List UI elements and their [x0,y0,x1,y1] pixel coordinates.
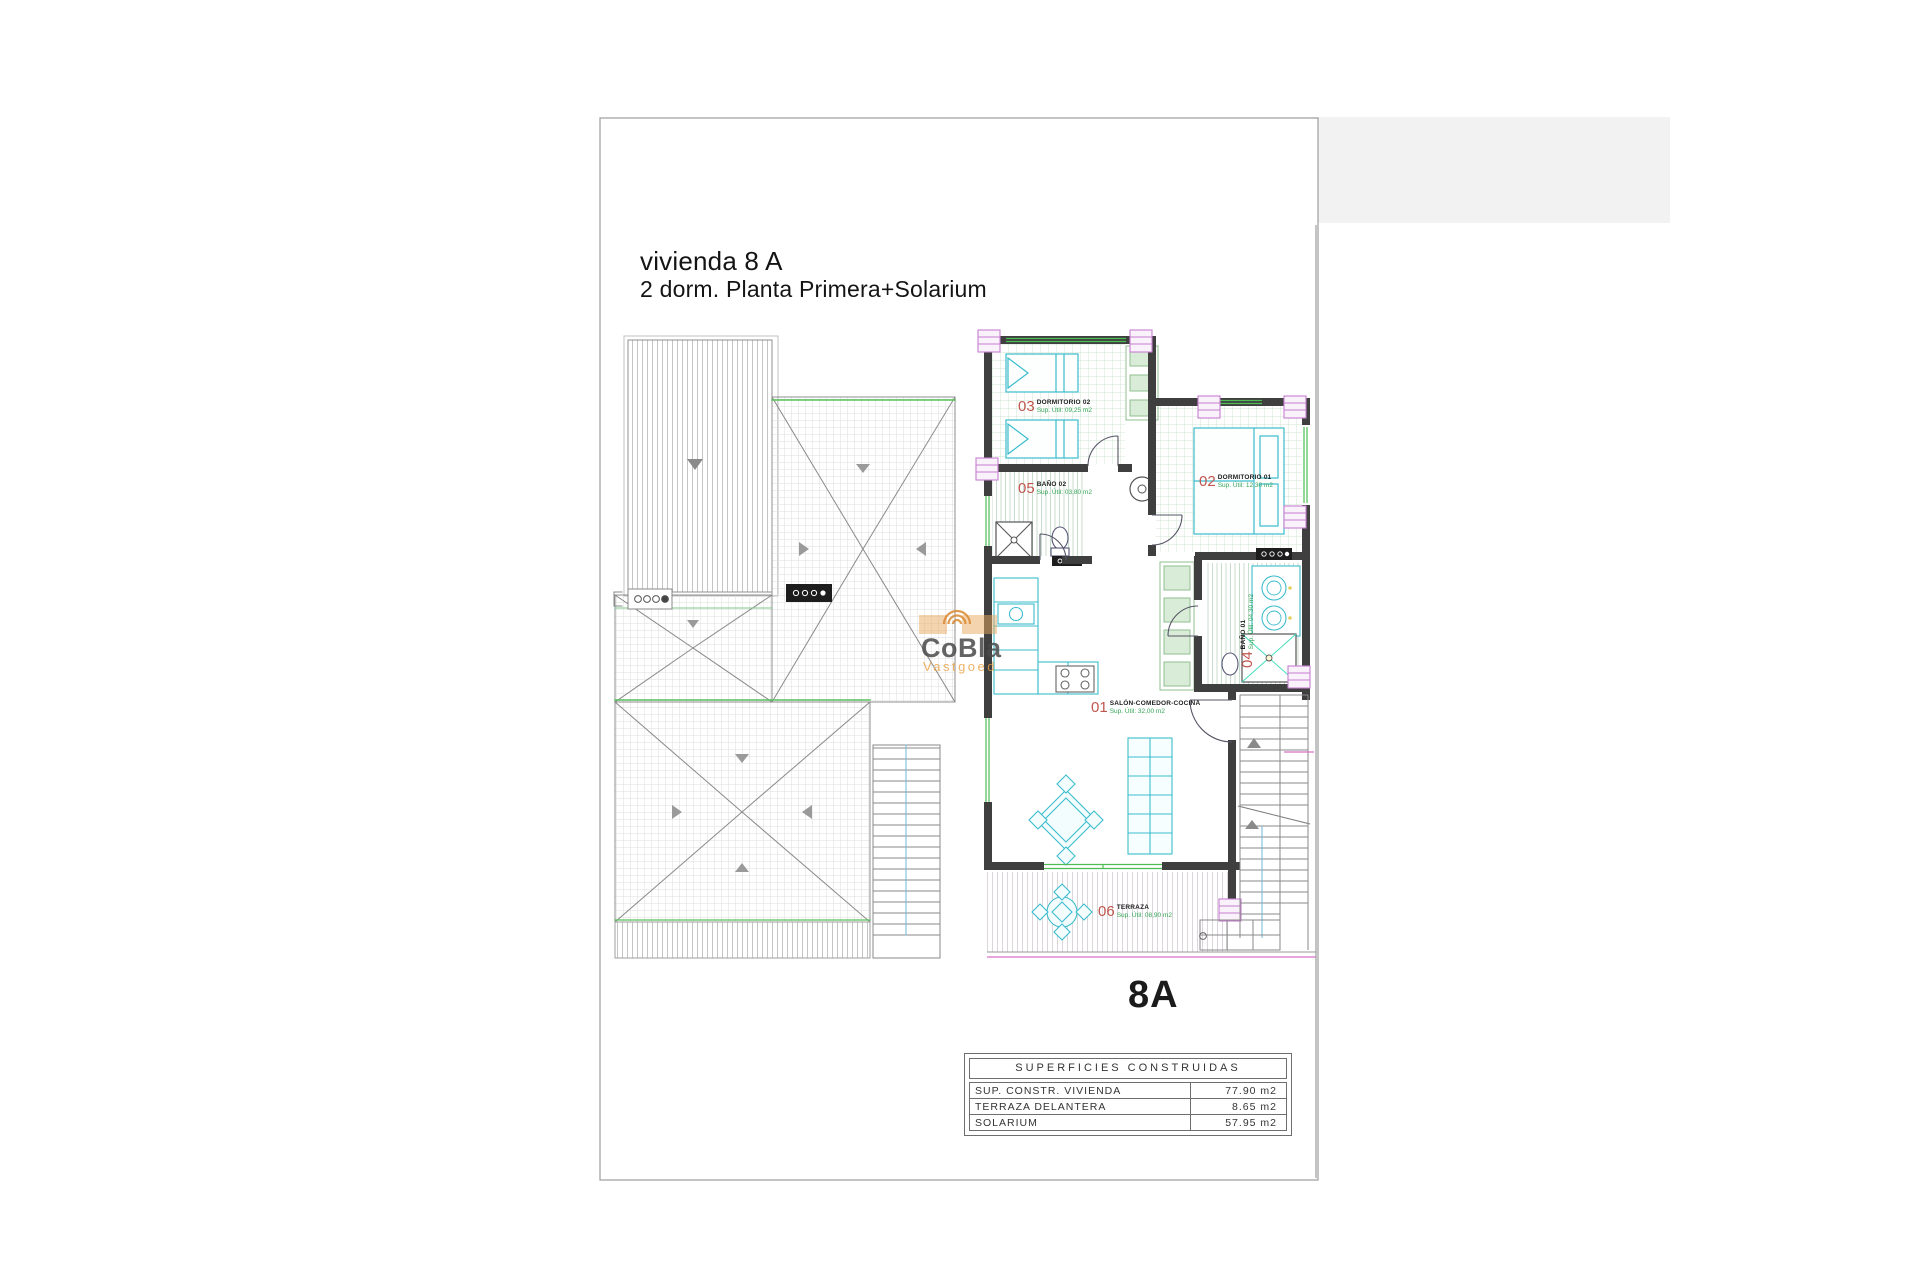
faded-stamp-area [1312,117,1670,223]
room-label-dormitorio-02: 03 DORMITORIO 02 Sup. Útil: 09,25 m2 [1018,399,1092,414]
room-name: DORMITORIO 02 [1037,400,1092,407]
room-label-dormitorio-01: 02 DORMITORIO 01 Sup. Útil: 12,30 m2 [1199,474,1273,489]
watermark-tagline: Vastgoed [919,659,1001,674]
column [976,458,998,480]
row-label: SUP. CONSTR. VIVIENDA [970,1083,1190,1098]
bed-single-2 [1006,420,1078,458]
room-label-bano-02: 05 BAÑO 02 Sup. Útil: 03,80 m2 [1018,481,1092,496]
shelf-unit [1128,738,1172,854]
room-number: 04 [1240,651,1255,668]
column [1288,666,1310,688]
room-label-terraza: 06 TERRAZA Sup. Útil: 08,90 m2 [1098,904,1172,919]
areas-table-title: SUPERFICIES CONSTRUIDAS [969,1058,1287,1079]
plan-sheet-page: vivienda 8 A 2 dorm. Planta Primera+Sola… [0,0,1920,1280]
room-area: Sup. Útil: 32,00 m2 [1110,709,1201,716]
row-label: SOLARIUM [970,1115,1190,1130]
room-name: TERRAZA [1117,905,1172,912]
solarium-stairs [873,745,940,958]
row-label: TERRAZA DELANTERA [970,1099,1190,1114]
unit-label: 8A [1128,974,1179,1017]
table-row: SOLARIUM 57.95 m2 [970,1115,1286,1130]
room-area: Sup. Útil: 08,90 m2 [1117,913,1172,920]
column [1284,506,1306,528]
room-name: BAÑO 02 [1037,482,1092,489]
room-name: BAÑO 01 [1241,594,1248,649]
row-value: 57.95 m2 [1190,1115,1286,1130]
room-area: Sup. Útil: 04,30 m2 [1249,594,1256,649]
room-area: Sup. Útil: 03,80 m2 [1037,490,1092,497]
cooktop [1056,666,1094,692]
sheet-subtitle: 2 dorm. Planta Primera+Solarium [640,276,987,303]
room-name: SALÓN-COMEDOR-COCINA [1110,701,1201,708]
room-label-salon: 01 SALÓN-COMEDOR-COCINA Sup. Útil: 32,00… [1091,700,1200,715]
room-number: 05 [1018,481,1035,496]
column [1130,330,1152,352]
room-area: Sup. Útil: 09,25 m2 [1037,408,1092,415]
room-number: 02 [1199,474,1216,489]
room-area: Sup. Útil: 12,30 m2 [1218,483,1273,490]
room-number: 06 [1098,904,1115,919]
sheet-title: vivienda 8 A [640,246,783,277]
table-row: SUP. CONSTR. VIVIENDA 77.90 m2 [970,1083,1286,1099]
areas-table: SUPERFICIES CONSTRUIDAS SUP. CONSTR. VIV… [964,1053,1292,1136]
column [1284,396,1306,418]
table-row: TERRAZA DELANTERA 8.65 m2 [970,1099,1286,1115]
column [1198,396,1220,418]
room-label-bano-01: 04 BAÑO 01 Sup. Útil: 04,30 m2 [1240,594,1255,668]
column [978,330,1000,352]
solarium-roof-plan [614,336,955,958]
row-value: 8.65 m2 [1190,1099,1286,1114]
room-number: 03 [1018,399,1035,414]
column [1219,899,1241,921]
bed-single-1 [1006,354,1078,392]
room-number: 01 [1091,700,1108,715]
row-value: 77.90 m2 [1190,1083,1286,1098]
room-name: DORMITORIO 01 [1218,475,1273,482]
